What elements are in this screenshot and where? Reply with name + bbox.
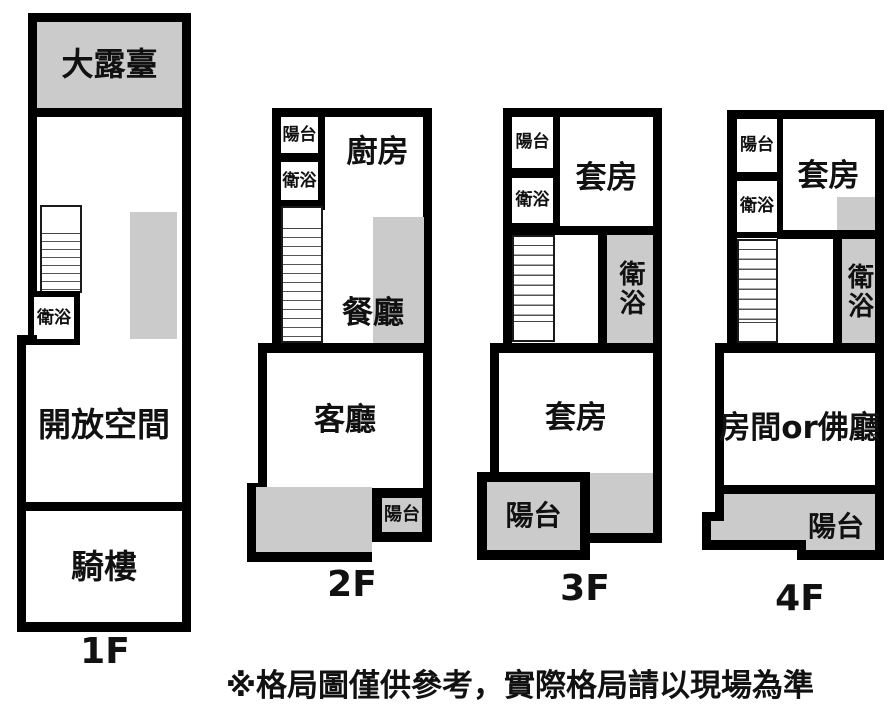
4f-balcony-divider-wall [715,485,884,494]
1f-arcade-label: 騎樓 [26,548,182,584]
1f-outer-wall-right [182,13,191,632]
2f-front-shaded-area [256,487,372,552]
2f-kitchen-label: 廚房 [325,134,430,170]
1f-mid-divider-wall [17,502,191,511]
4f-stairs [737,239,778,343]
3f-balcony-top-room: 陽台 [512,117,553,168]
2f-balcony-label: 陽台 [384,506,420,524]
2f-balcony-top-label: 陽台 [283,127,317,144]
2f-stairs-landing [283,208,321,229]
3f-outer-wall-left-lower [490,343,499,482]
2f-outer-wall-bottom [247,552,372,562]
floorplan-canvas: 大露臺 衛浴 開放空間 騎樓 1F 陽台 衛浴 廚房 餐廳 客廳 陽台 2F [0,0,889,704]
3f-stairs-landing [514,237,553,246]
4f-stair-divider-wall [833,239,842,343]
3f-suite-bottom-wall [553,226,662,235]
1f-floor-label: 1F [30,634,180,670]
2f-balcony-top-room: 陽台 [281,117,318,153]
4f-bath-mid-label: 衛浴 [842,252,875,332]
1f-open-space-label: 開放空間 [26,406,182,442]
4f-balcony-label: 陽台 [797,510,875,544]
2f-stairs-treads [283,229,321,341]
2f-bath-top-room: 衛浴 [281,162,318,200]
3f-balcony-top-label: 陽台 [516,134,550,151]
4f-floor-label: 4F [750,580,850,618]
4f-stairs-foot [739,322,776,341]
3f-mid-wall [490,343,662,353]
2f-dining-label: 餐廳 [320,295,426,331]
3f-bottom-right-wall [580,533,662,543]
3f-outer-wall-right [653,108,662,543]
2f-bath-top-label: 衛浴 [283,173,317,190]
3f-bath-mid-label: 衛浴 [607,248,653,330]
4f-balcony-shaded-left [724,494,797,540]
4f-bath-top-room: 衛浴 [737,181,777,232]
disclaimer-text: ※格局圖僅供參考，實際格局請以現場為準 [180,662,860,702]
4f-bath-top-label: 衛浴 [740,198,774,215]
1f-stairs-landing [42,207,80,234]
4f-stairs-treads [739,250,776,322]
1f-terrace-divider-wall [37,108,182,117]
3f-suite-label: 套房 [499,400,653,436]
4f-balcony-shaded-notch [711,521,724,540]
2f-living-label: 客廳 [267,402,423,438]
1f-bath-label-cell: 衛浴 [34,297,74,339]
4f-balcony-top-label: 陽台 [740,137,774,154]
3f-stair-divider-wall [598,235,607,343]
3f-suite-upper-label: 套房 [560,160,653,196]
2f-floor-label: 2F [302,566,402,604]
4f-suite-bottom-wall [777,230,884,239]
3f-bath-top-room: 衛浴 [512,178,553,223]
2f-balcony-cell: 陽台 [382,498,422,532]
3f-rear-shaded-area [590,473,653,533]
1f-outer-wall-left-lower [17,335,26,632]
4f-room-or-hall-label: 房間or佛廳 [715,410,884,446]
2f-mid-wall [258,343,430,353]
1f-stairs [40,205,82,293]
4f-balcony-top-room: 陽台 [737,119,777,172]
3f-balcony-label: 陽台 [505,502,561,530]
4f-bottom-left-wall [702,540,806,550]
2f-outer-wall-left-front [247,483,256,562]
1f-terrace-label: 大露臺 [37,44,182,84]
1f-stairs-treads [42,234,80,291]
3f-floor-label: 3F [535,570,635,608]
1f-bath-label: 衛浴 [37,310,71,327]
4f-stairs-landing [739,241,776,250]
3f-balcony-cell: 陽台 [487,482,580,550]
4f-suite-upper-label: 套房 [783,158,874,194]
4f-mid-wall [715,343,884,353]
3f-stairs-foot [514,321,553,340]
2f-outer-wall-left-lower [258,343,267,493]
3f-stairs-treads [514,246,553,321]
3f-bath-top-label: 衛浴 [516,192,550,209]
1f-shaded-block [130,212,177,339]
2f-stairs [281,206,323,343]
4f-bottom-right-wall [797,550,884,560]
3f-stairs [512,235,555,342]
1f-outer-wall-top [28,13,191,22]
4f-suite-shaded-block [837,197,875,230]
